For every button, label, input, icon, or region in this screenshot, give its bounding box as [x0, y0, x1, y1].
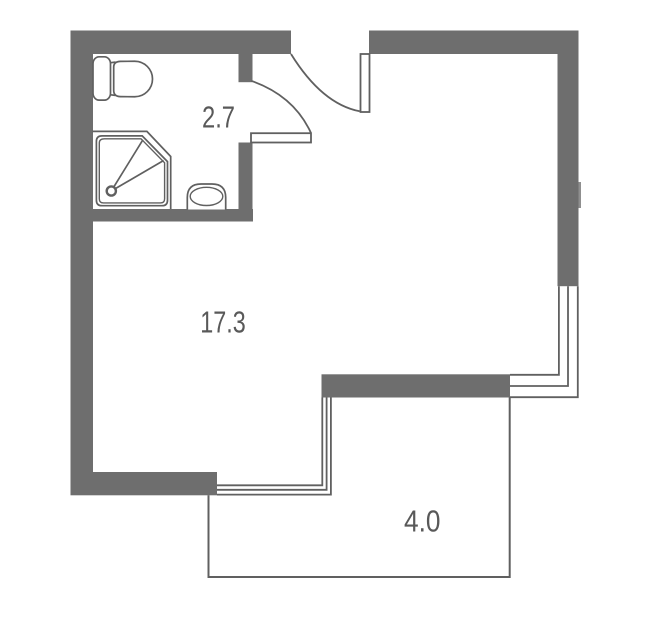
svg-text:4.0: 4.0: [404, 503, 441, 538]
svg-text:17.3: 17.3: [200, 304, 246, 339]
svg-text:2.7: 2.7: [202, 100, 235, 135]
